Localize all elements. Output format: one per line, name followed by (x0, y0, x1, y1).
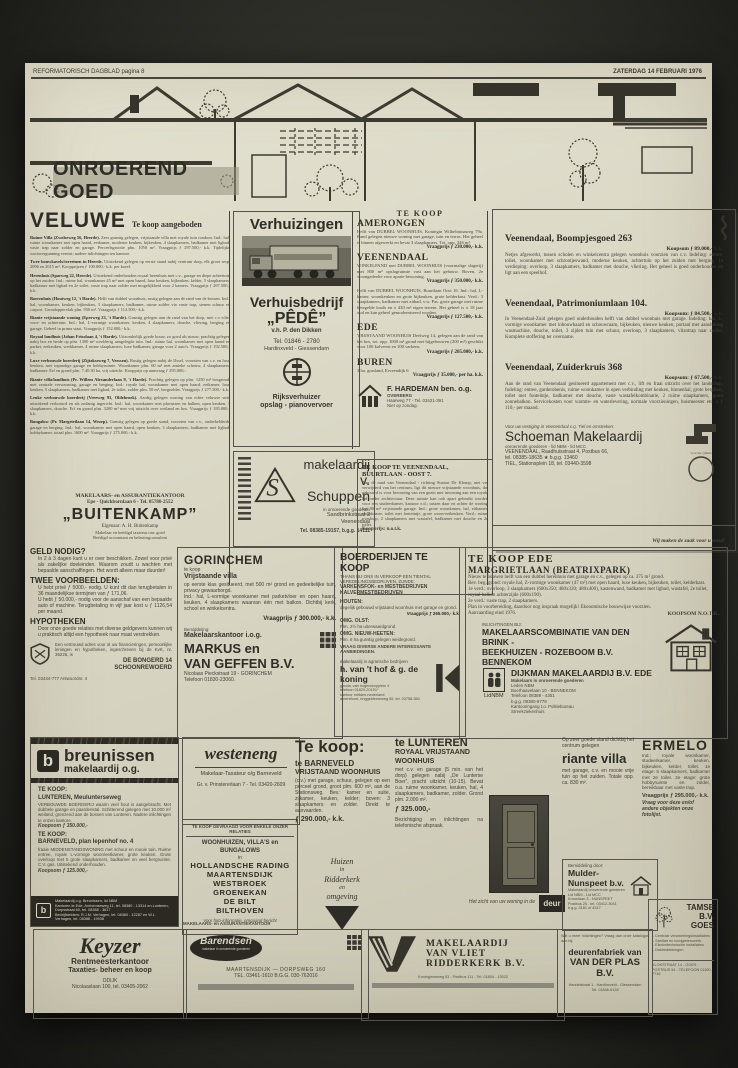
gorinchem-kind: Vrijstaande villa (184, 573, 336, 582)
buren-price: Vraagprijs ƒ 35.000,- per ha. k.k. (357, 373, 483, 379)
listing-heading: Veenendaal, Boompjesgoed 263 (505, 234, 632, 244)
footer-f3: Bedrijfsleiders: R.J.M. Verhagen, tel. 0… (55, 913, 173, 922)
veenendaal-price1: Vraagprijs ƒ 350.000,- k.k. (357, 279, 483, 285)
vdp-n2: VAN DER PLAS B.V. (561, 957, 649, 979)
barendsen-ad: Barendsen makelaar in onroerende goedere… (183, 929, 369, 1019)
pointer-l3: Ridderkerk (297, 875, 387, 885)
keyzer-ad: Keyzer Rentmeesterkantoor Taxaties- behe… (33, 929, 187, 1019)
geld-p4: Door onze goede relaties met diverse gel… (30, 626, 172, 638)
place-3: GROENEKAN (186, 888, 294, 897)
listing-zuiderkruis: Veenendaal, Zuiderkruis 368 Koopsom: ƒ 6… (505, 357, 723, 412)
keyzer-name: Keyzer (38, 935, 182, 957)
margriet-title: TE KOOP EDE (468, 553, 719, 565)
listing: Boerenhuis (Houtweg 12, 't Harde). Helft… (30, 296, 230, 312)
vanvliet-l1: MAKELAARDIJ (426, 939, 526, 949)
veluwe-subtitle: Te koop aangeboden (132, 220, 202, 230)
firm-vh: v.h. P. den Dikken (237, 328, 356, 336)
lid-nbm-icon: LidNBM (482, 668, 506, 698)
lunteren-body2: Bezichtiging en inlichtingen na telefoni… (395, 817, 483, 829)
rijksverhuizer: Rijksverhuizer (237, 394, 356, 403)
tamse-a2: POSTBUS 54 - TELEFOON 01100-7716 (652, 968, 714, 977)
barneveld-h: te BARNEVELD (295, 759, 390, 769)
boerderijen-b2: KALVERMESTBEDRIJVEN (340, 590, 460, 596)
hardeman-ad: F. HARDEMAN ben. o.g. OVERBERG Haarweg 7… (357, 384, 483, 410)
firm-name: h. van 't hof & g. de koning (340, 664, 432, 684)
lunteren-h: te LUNTEREN (395, 737, 483, 749)
combinatie-2: BEEKHUIZEN - ROZEBOOM B.V. BENNEKOM (482, 647, 655, 667)
tekoop-column: TE KOOP AMERONGEN Helft van DUBBEL WOONH… (357, 209, 483, 455)
office-name: „BUITENKAMP” (30, 506, 230, 524)
section-title: ONROEREND GOED (53, 158, 239, 204)
l1-price: Koopsom ƒ 350.000,- (38, 823, 171, 829)
barendsen-oval-sub: makelaar in onroerende goederen (190, 948, 262, 951)
veenendaal-box: Veenendaal, Boompjesgoed 263 Koopsom ƒ 8… (492, 209, 736, 551)
gorinchem-ad: GORINCHEM te koop Vrijstaande villa op e… (177, 547, 343, 739)
listing: Twee bouwkavels/terreinen in Heerde. Uit… (30, 259, 230, 269)
ede-heading: EDE (357, 323, 483, 333)
veenendaal-body2: Helft van DUBBEL WOONHUIS, Buurtlaan Oos… (357, 288, 483, 315)
vdp-a1: Handelstraat 1 - Hardinxveld - Giessenda… (561, 983, 649, 988)
margriet-p6: Aanvaarding eind 1976. (468, 611, 516, 618)
geld-p3: U hebt ƒ 50.000,- nodig voor de aanschaf… (30, 597, 172, 615)
divider (195, 767, 287, 768)
tamse-item-3: – Dakbedekkingen (652, 948, 714, 953)
l1-addr: LUNTEREN, Meulunterseweg (38, 795, 171, 803)
firm-name: „PÊDÊ” (237, 310, 356, 328)
boerderijen-ad: BOERDERIJEN TE KOOP THANS BIJ ONS IN VER… (334, 547, 466, 737)
door-knob (531, 843, 534, 846)
boerderijen-t3: Plm. 6 ha gunstig gelegen weidegrond. (340, 637, 460, 642)
pointer-l2: in (297, 867, 387, 875)
barneveld-ad: Te koop: te BARNEVELD VRIJSTAAND WOONHUI… (295, 737, 390, 825)
gevraagd-ad: TE KOOP GEVRAAGD VOOR ENKELE ONZER RELAT… (182, 819, 298, 935)
gevraagd-top: TE KOOP GEVRAAGD VOOR ENKELE ONZER RELAT… (186, 824, 294, 837)
breunissen-b-logo-small: b (36, 903, 51, 918)
l1-body: VERBOUWDE BOERDERIJ waarin veel hout is … (38, 802, 171, 823)
margriet-koopsom: KOOPSOM N.O.T.K. (668, 611, 719, 618)
breunissen-ad: b breunissen makelaardij o.g. TE KOOP: L… (30, 737, 179, 927)
dijkman-d7: Streekziekenhuis (511, 709, 652, 714)
vanvliet-ad: MAKELAARDIJ VAN VLIET RIDDERKERK B.V. Ko… (361, 929, 565, 1021)
ermelo-intro: Op zeer goede stand dichtbij het centrum… (562, 737, 634, 749)
gorinchem-a2: Telefoon 01830-23060. (184, 677, 336, 683)
ermelo-title: ERMELO (642, 737, 710, 753)
breunissen-footer: b Makelaardij o.g. Breunissen, lid NBM K… (31, 896, 178, 926)
gorinchem-k1: Makelaarskantoor i.o.g. (184, 632, 295, 641)
ede-price: Vraagprijs ƒ 205.000,- k.k. (357, 350, 483, 356)
tamse-ad: TAMSE B.V. GOES – Centrale verwarmingsin… (648, 899, 718, 1015)
flower-scribble-icon (652, 905, 676, 929)
gorinchem-k2: MARKUS en (184, 641, 295, 656)
listing: Royaal landhuis (Johan Frisolaan 4, 't H… (30, 334, 230, 355)
firm-line: Verhuisbedrijf (237, 294, 356, 310)
listing-patrimoniumlaan: Veenendaal, Patrimoniumlaan 104. Koopsom… (505, 293, 723, 342)
k-logo-icon (436, 664, 460, 692)
listing-heading: Veenendaal, Zuiderkruis 368 (505, 363, 622, 373)
tamse-a1: KLOKSTRAAT 14 - GOES (652, 960, 714, 968)
barneveld-price: ƒ 290.000,- k.k. (295, 816, 390, 825)
vdp-a2: Tel. 01846-6128 (561, 988, 649, 993)
circle-icon (686, 455, 716, 483)
grid-logo-icon (347, 935, 362, 950)
pointer-l4: en (297, 885, 387, 893)
dark-block-left (473, 83, 539, 96)
verhuizingen-ad: Verhuizingen Verhuisbedrijf „PÊDÊ” v.h. … (233, 211, 360, 447)
office-type: MAKELAARS- en ASSURANTIEKANTOOR (30, 493, 230, 500)
listing: Luxe verbouwde boerderij (Zijtakseweg 7,… (30, 358, 230, 374)
barneveld-big: Te koop: (295, 737, 390, 757)
geld-tel: Tel. 03434-777 Antwoordnr. 4 (30, 676, 172, 681)
firm-a4: amersfoort, ringgelderseweg 55, tel. 037… (340, 697, 432, 702)
schoeman-s-icon (684, 424, 718, 446)
barendsen-l2: TEL. 03461-1610 B.G.G. 030-762016 (190, 973, 362, 979)
lunteren-price: ƒ 325.000,- (395, 806, 483, 815)
newspaper-page: REFORMATORISCH DAGBLAD pagina 8 ZATERDAG… (25, 63, 712, 1013)
veenendaal-price2: Vraagprijs ƒ 127.500,- k.k. (357, 315, 483, 321)
l2-price: Koopsom ƒ 125.000,- (38, 868, 171, 874)
house-drawing-icon (663, 622, 719, 674)
pointer-l1: Huizen (297, 857, 387, 867)
lunteren-body: met c.v. en garage (5 min. van het dorp)… (395, 767, 483, 803)
boerderijen-intro: THANS BIJ ONS IN VERKOOP EEN TIENTAL VER… (340, 574, 460, 584)
amerongen-body: Helft van DUBBEL WOONHUIS, Koningin Wilh… (357, 229, 483, 245)
buitenkamp-ad: MAKELAARS- en ASSURANTIEKANTOOR Epe - Qu… (30, 493, 230, 540)
ermelo-ad: Op zeer goede stand dichtbij het centrum… (562, 737, 710, 853)
gorinchem-body2: Ind.: hal, L-vormige woonkamer met parke… (184, 594, 336, 612)
vanderplas-ad: Wilt u meer inlichtingen? Vraag dan onze… (557, 929, 653, 1017)
gorinchem-title: GORINCHEM (184, 553, 336, 567)
amerongen-heading: AMERONGEN (357, 219, 483, 229)
listing: Riante villa/landhuis (Pr. Willem Alexan… (30, 377, 230, 393)
schoeman-logo: voor uw (t)huis (679, 424, 723, 488)
listing-price: Koopsom: ƒ 84.500,- k.k. (505, 311, 723, 318)
section-title-box: ONROEREND GOED (53, 167, 239, 195)
listing: Bungalow (Pr. Margrietlaan 14, Wezep). G… (30, 419, 230, 435)
barendsen-oval-logo: Barendsen makelaar in onroerende goedere… (190, 935, 262, 961)
geld-p1: In 2 à 3 dagen kunt u er over beschikken… (30, 556, 172, 574)
mulder-s5: b.g.g. 3181 of 4317 (568, 906, 626, 911)
geld-h3: HYPOTHEKEN (30, 617, 172, 626)
lunteren-kind: ROYAAL VRIJSTAAND WOONHUIS (395, 749, 483, 767)
vanvliet-addr: Koninginneweg 53 - Postbus 111 - Tel. 01… (368, 975, 558, 980)
boerderijen-title: BOERDERIJEN TE KOOP (340, 552, 460, 574)
veluwe-title: VELUWE (30, 209, 126, 233)
door-window (507, 811, 535, 843)
westeneng-addr: Gr. v. Prinstererlaan 7 - Tel. 03420-260… (187, 782, 295, 788)
ermelo-foot: Vraag voor deze en/of andere objekten on… (642, 800, 710, 818)
listing-body: In Veenendaal-Zuid gelegen goed onderhou… (505, 317, 723, 341)
dijkman-name: DIJKMAN MAKELAARDIJ B.V. EDE (511, 668, 652, 678)
ermelo-kind: riante villa (562, 751, 634, 766)
buurtlaan-title2: BUURTLAAN - OOST 7. (362, 471, 488, 478)
veenendaal-heading: VEENENDAAL (357, 253, 483, 263)
keyzer-s1: Rentmeesterkantoor (38, 957, 182, 967)
footer-f2: Kantoren te Ede, Arnhemseweg 11, tel. 08… (55, 904, 173, 913)
door-panel (502, 804, 538, 886)
mulder-house-icon (630, 876, 652, 896)
boerderijen-b3: VRAAG DIVERSE ANDERE INTERESSANTE AANBIE… (340, 644, 460, 654)
barneveld-body: (c.v.) met garage, schuur, gelegen op ee… (295, 778, 390, 814)
brick-pattern-icon (238, 457, 251, 523)
tamse-place: GOES (678, 921, 714, 930)
listing-body: Netjes afgewerkt, tussen scholen en wink… (505, 253, 723, 277)
mulder-name: Mulder-Nunspeet b.v. (568, 868, 626, 888)
vdp-n1: deurenfabriek van (561, 947, 649, 957)
l2-head: TE KOOP: (38, 832, 171, 840)
boerderijen-t1: degelijk gebouwd vrijstaand woonhuis met… (340, 605, 460, 610)
boerderijen-p1: Vraagprijs ƒ 265.000,- k.k. (340, 611, 460, 616)
geld-side: Een vertrouwd adres voor al uw financier… (55, 642, 172, 658)
newspaper-photo: REFORMATORISCH DAGBLAD pagina 8 ZATERDAG… (0, 0, 738, 1068)
place-0: HOLLANDSCHE RADING (186, 861, 294, 870)
lunteren-ad: te LUNTEREN ROYAAL VRIJSTAAND WOONHUIS m… (395, 737, 483, 829)
schoeman-ad: Voor uw vestiging in Veenendaal c.q. Tie… (505, 424, 723, 488)
door-photo (489, 795, 549, 893)
breunissen-sub: makelaardij o.g. (64, 764, 155, 775)
buren-heading: BUREN (357, 358, 483, 368)
schuppen-triangle-logo: S (254, 465, 296, 505)
margriet-sub: MARGRIETLAAN (BEATRIXPARK) (468, 565, 719, 575)
opslag: opslag - pianovervoer (237, 402, 356, 411)
westeneng-sub: Makelaar-Taxateur o/g Barneveld (187, 771, 295, 778)
l2-body: fraaie MIDDENSTANDSWONING met schuur en … (38, 847, 171, 868)
vanvliet-l2: VAN VLIET (426, 949, 526, 959)
hardeman-note: Niet op zondag. (387, 403, 472, 408)
masthead-rule (31, 77, 706, 79)
listing: Herenhuis (Sparweg 22, Heerde). Uitsteke… (30, 273, 230, 294)
ermelo-left: met garage, c.v. en mooie vrije tuin op … (562, 768, 634, 786)
gray-bar (372, 983, 554, 988)
down-arrow-icon (325, 906, 359, 930)
keyzer-s4: Nicolaaslaan 100, tel. 03405-2062 (38, 984, 182, 990)
amerongen-price: Vraagprijs ƒ 230.000,- k.k. (357, 245, 483, 251)
firm-tel: Tel. 01846 - 2780 (237, 339, 356, 347)
tekoop-header: TE KOOP (357, 209, 483, 219)
tamse-name: TAMSE B.V. (678, 903, 714, 921)
listing-price: Koopsom ƒ 89.000,- k.k. (505, 246, 723, 253)
geld-nodig-ad: GELD NODIG? In 2 à 3 dagen kunt u er ove… (30, 547, 172, 727)
vdp-q: Wilt u meer inlichtingen? Vraag dan onze… (561, 934, 649, 943)
buurtlaan-title1: TE KOOP TE VEENENDAAL, (362, 464, 488, 471)
barendsen-label: MAKELAARS- en ASSURANTIEKANTOOR (183, 921, 355, 926)
listing-heading: Veenendaal, Patrimoniumlaan 104. (505, 299, 647, 309)
gorinchem-k3: VAN GEFFEN B.V. (184, 656, 295, 671)
ridderkerk-pointer: Huizen in Ridderkerk en omgeving (297, 857, 387, 930)
hardeman-name: F. HARDEMAN ben. o.g. (387, 384, 472, 393)
breunissen-name: breunissen (64, 747, 155, 764)
buurtlaan-price: Koopprijs: n.o.t.k. (362, 527, 488, 533)
gray-bar (198, 984, 354, 990)
listing: Riante vrijstaande woning (Eperweg 23, '… (30, 315, 230, 331)
vanvliet-l3: RIDDERKERK B.V. (426, 959, 526, 969)
firm-place: Hardinxveld - Giessendam (237, 346, 356, 353)
boerderijen-t2: Plm. 2½ ha uiterwaardgrond. (340, 624, 460, 629)
door-lower-panel (507, 847, 535, 879)
mulder-ad: Bemiddeling door: Mulder-Nunspeet b.v. M… (562, 859, 658, 931)
ede-body: VRIJSTAAND WOONHUIS Deelweg 14, gelegen … (357, 333, 483, 349)
listing-boompjesgoed: Veenendaal, Boompjesgoed 263 Koopsom ƒ 8… (505, 228, 723, 277)
l1-head: TE KOOP: (38, 787, 171, 795)
moving-truck-photo (242, 236, 351, 286)
listing-price: Koopsom: ƒ 67.500,- k.k. (505, 375, 723, 382)
veluwe-section: VELUWE Te koop aangeboden Ruime Villa (Z… (30, 209, 230, 529)
masthead-left: REFORMATORISCH DAGBLAD pagina 8 (33, 69, 144, 77)
margriet-p3: 1e verd.: overloop, 3 slaapkamers (600x3… (468, 587, 719, 599)
place-1: MAARTENSDIJK (186, 870, 294, 879)
geld-a1: DE BONGERD 14 (55, 658, 172, 666)
place-5: BILTHOVEN (186, 906, 294, 915)
gorinchem-body: op eerste klas gesitueerd, met 500 m² gr… (184, 582, 336, 594)
masthead-date: ZATERDAG 14 FEBRUARI 1976 (613, 69, 702, 77)
keyzer-s2: Taxaties- beheer en koop (38, 967, 182, 976)
westeneng-ad: westeneng Makelaar-Taxateur o/g Barnevel… (182, 737, 300, 825)
v-logo-icon (368, 936, 416, 972)
listing: Ruime Villa (Zwolseweg 56, Heerde). Zeer… (30, 235, 230, 256)
schoeman-slogan: Wij maken de zaak voor u rond! (652, 538, 725, 544)
ermelo-right: Ind.: royale woonkamer, studeerkamer, ke… (642, 753, 710, 791)
l2-addr: BARNEVELD, plan Iepenhof no. 4 (38, 839, 171, 847)
place-2: WESTBROEK (186, 879, 294, 888)
gevraagd-line1: WOONHUIZEN, VILLA'S en BUNGALOWS (186, 840, 294, 855)
geld-h1: GELD NODIG? (30, 547, 172, 556)
ad-title: Verhuizingen (237, 216, 356, 233)
combinatie-1: MAKELAARSCOMBINATIE VAN DEN BRINK - (482, 627, 655, 647)
listing-body: Aan de rand van Veenendaal gesitueerd ap… (505, 382, 723, 412)
schoeman-name: Schoeman Makelaardij (505, 429, 673, 444)
breunissen-b-logo: b (37, 750, 59, 772)
office-sub2: Beëdigd accountant en belastingconsulent (30, 535, 230, 540)
place-4: DE BILT (186, 897, 294, 906)
barneveld-kind: VRIJSTAAND WOONHUIS (295, 769, 390, 778)
veluwe-listings: Ruime Villa (Zwolseweg 56, Heerde). Zeer… (30, 235, 230, 485)
pede-wheel-icon (282, 357, 312, 387)
buurtlaan-body: Aan de rand van Veenendaal - richting St… (362, 480, 488, 527)
hardeman-house-icon (357, 384, 383, 410)
geld-a2: SCHOONREWOERD (55, 665, 172, 673)
geld-p2: U hebt privé ƒ 5000,- nodig. U kunt dit … (30, 585, 172, 597)
ornament-icon (717, 214, 731, 240)
logo-letter: S (266, 475, 278, 502)
listing: Leuke verbouwde boerderij (Vreeweg 93, O… (30, 395, 230, 416)
westeneng-name: westeneng (187, 744, 295, 764)
veenendaal-body1: WINKELPAND met DUBBEL WOONHUIS (voormali… (357, 263, 483, 279)
geld-h2: TWEE VOORBEELDEN: (30, 576, 172, 585)
schoeman-a3: TIEL, Stationsplein 18, tel. 03440-3598 (505, 461, 673, 467)
crest-icon (30, 642, 50, 666)
deur-caption: Het zicht van uw woning in de (421, 899, 535, 905)
ermelo-price: Vraagprijs ƒ 295.000,- k.k. (642, 793, 710, 800)
dark-block-right (598, 83, 676, 96)
schuppen-ad: S makelaardij v. Schuppen in onroerende … (233, 451, 375, 547)
nbm-caption: LidNBM (484, 693, 504, 698)
pointer-l5: omgeving (297, 892, 387, 902)
margrietlaan-ad: TE KOOP EDE MARGRIETLAAN (BEATRIXPARK) N… (459, 547, 728, 739)
gorinchem-price: Vraagprijs ƒ 300.000,- k.k. (184, 616, 336, 624)
